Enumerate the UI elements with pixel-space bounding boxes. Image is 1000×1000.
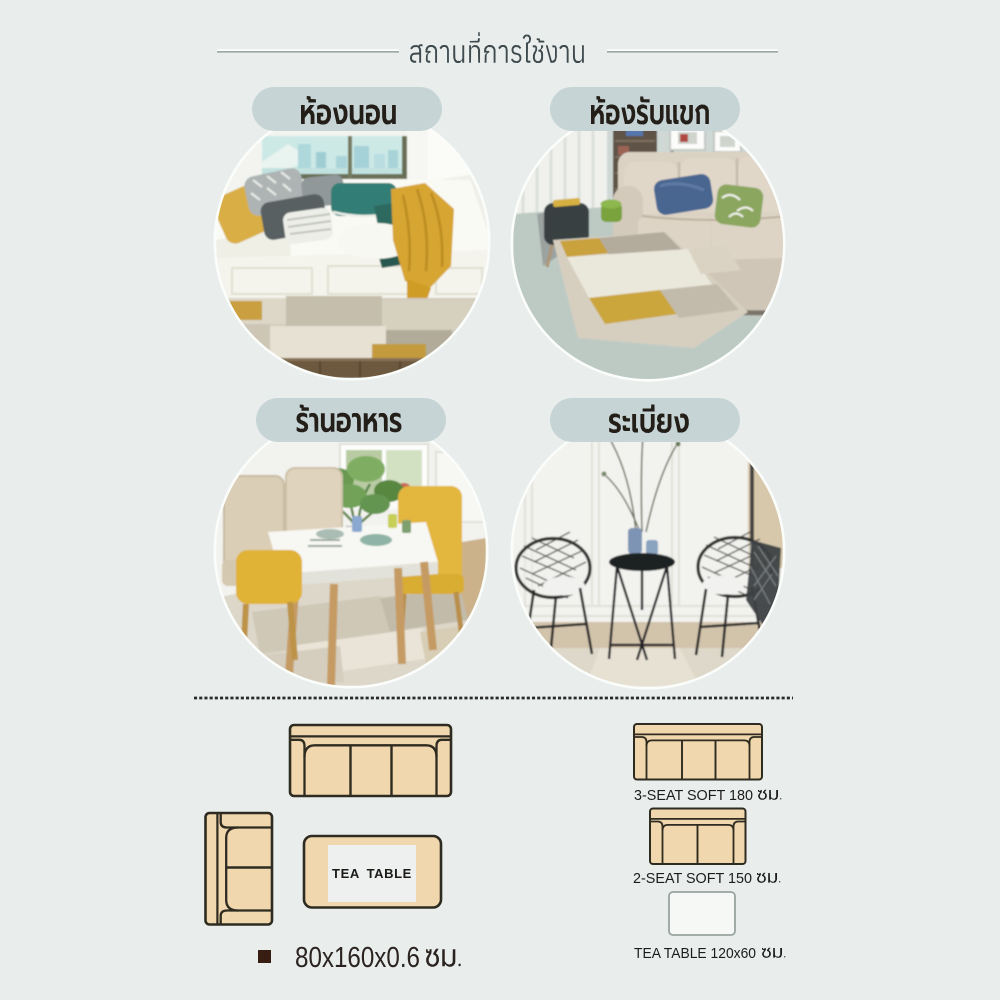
svg-text:TEA TABLE: TEA TABLE [332, 866, 412, 881]
svg-text:80x160x0.6: 80x160x0.6 [295, 942, 420, 974]
svg-text:3-SEAT SOFT 180: 3-SEAT SOFT 180 [634, 787, 753, 804]
svg-text:2-SEAT SOFT 150: 2-SEAT SOFT 150 [633, 870, 752, 887]
svg-text:TEA TABLE 120x60: TEA TABLE 120x60 [634, 945, 756, 962]
